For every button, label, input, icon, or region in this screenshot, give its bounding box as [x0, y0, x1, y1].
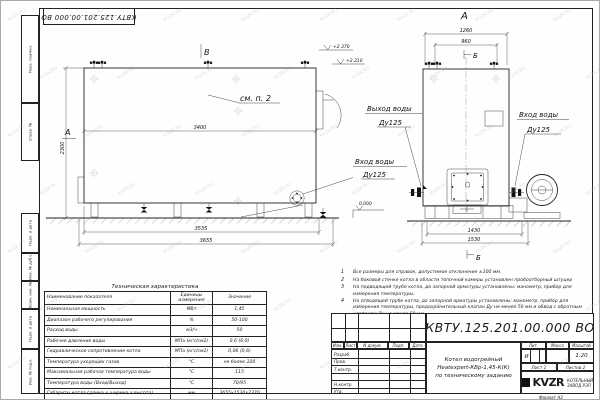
see-note-ref: см. п. 2	[240, 94, 271, 103]
side-stamp-perv-primen: Перв. примен.	[21, 15, 39, 103]
elevation-mid: +2.210	[346, 58, 363, 64]
view-label-a: А	[460, 11, 468, 22]
table-row: Номинальная мощностьМВт1,45	[45, 305, 267, 316]
sig-nkontr: Н.контр.	[334, 382, 353, 387]
tech-characteristics: Техническая характеристика Наименование …	[44, 284, 266, 400]
format-label: Формат А3	[539, 395, 563, 400]
param-value: 50-100	[213, 315, 267, 326]
side-stamp-label: Справ. №	[28, 123, 33, 141]
outlet-water-dn: Ду125	[378, 119, 403, 127]
company-logo-text: KVZR	[533, 376, 564, 389]
side-view: 3400 2300 3535 3655 В А +2.370	[46, 44, 407, 247]
side-stamp-label: Взам. инв. №	[28, 282, 33, 308]
table-row: Температура уходящих газов°Сне более 220	[45, 357, 267, 368]
inlet-water-dn: Ду125	[362, 171, 387, 179]
sig-prov: Пров.	[334, 359, 346, 364]
note-text: На боковой стенке котла в области топочн…	[353, 278, 572, 284]
side-stamp-label: Подп. и дата	[28, 220, 33, 246]
param-name: Габариты котла (длина х ширина х высота)	[45, 389, 171, 400]
side-stamp-podp-data-2: Подп. и дата	[21, 309, 39, 349]
boiler-shell	[84, 68, 316, 203]
tech-col-header: Наименование показателя	[45, 292, 171, 305]
inlet-water-label-front: Вход воды	[519, 111, 559, 119]
param-unit: °С	[171, 378, 213, 389]
side-stamp-inv-dubl: Инв. № дубл.	[21, 253, 39, 281]
drawing-sheet: KVZR.RUKVZR.RUKVZR.RUKVZR.RUKVZR.RUKVZR.…	[0, 0, 600, 400]
param-value: 0,6 (6,0)	[213, 336, 267, 347]
param-value: 50	[213, 326, 267, 337]
air-vent-valve	[90, 61, 98, 68]
section-mark-b-top: Б	[473, 52, 478, 60]
note-item: 3На подводящей трубе котла, до запорной …	[341, 285, 593, 297]
sheet-cell: Лист 1	[521, 363, 557, 371]
param-name: Температура воды (Вход/Выход)	[45, 378, 171, 389]
tech-table-title: Техническая характеристика	[44, 284, 266, 290]
param-unit: МВт	[171, 305, 213, 316]
param-name: Диапазон рабочего регулирования	[45, 315, 171, 326]
side-stamp-inv-podl: Инв. № подл.	[21, 349, 39, 394]
col-data: Дата	[409, 342, 426, 349]
param-value: 0,06 (0,6)	[213, 347, 267, 358]
doc-number: КВТУ.125.201.00.000 ВО	[427, 314, 593, 341]
lit-value: И	[525, 353, 529, 361]
revision-grid	[331, 313, 426, 342]
note-number: 3	[341, 285, 348, 297]
param-unit: %	[171, 315, 213, 326]
inlet-water-dn-front: Ду125	[526, 126, 551, 134]
side-stamp-label: Перв. примен.	[28, 45, 33, 74]
side-stamp-label: Инв. № дубл.	[28, 254, 33, 280]
note-text: Все размеры для справок, допустимое откл…	[353, 270, 501, 276]
sheets-value: 2	[583, 365, 586, 370]
flue-outlet	[316, 91, 323, 129]
signature-rows: Разраб. Пров. Т.контр. Н.контр. Утв.	[331, 349, 426, 394]
table-row: Температура воды (Вход/Выход)°С70/95	[45, 378, 267, 389]
boiler-drawing: 3400 2300 3535 3655 В А +2.370	[41, 9, 597, 269]
dim-2300: 2300	[60, 142, 66, 155]
param-name: Температура уходящих газов	[45, 357, 171, 368]
outlet-water-label: Выход воды	[367, 105, 412, 113]
note-number: 1	[341, 270, 348, 276]
param-value: не более 220	[213, 357, 267, 368]
param-name: Рабочее давление воды	[45, 336, 171, 347]
doc-title-line1: Котел водогрейный	[445, 356, 503, 364]
side-stamp-podp-data-1: Подп. и дата	[21, 213, 39, 253]
sig-tkontr: Т.контр.	[334, 367, 352, 372]
table-row: Гидравлическое сопротивление котлаМПа (к…	[45, 347, 267, 358]
table-row: Диапазон рабочего регулирования%50-100	[45, 315, 267, 326]
table-row: Максимальная рабочая температура воды°С1…	[45, 368, 267, 379]
col-ndocum: N докум.	[357, 342, 388, 349]
scale-value-cell: 1:20	[569, 349, 594, 363]
section-mark-a: А	[64, 128, 70, 137]
tech-table: Наименование показателя Единицы измерени…	[44, 291, 267, 400]
inlet-pipe-valve	[512, 188, 516, 198]
company-logo-mark	[522, 378, 530, 387]
section-mark-b-bottom: Б	[476, 254, 481, 262]
dim-3655: 3655	[200, 238, 213, 244]
side-stamp-label: Подп. и дата	[28, 316, 33, 342]
tech-col-header: Единицы измерения	[171, 292, 213, 305]
title-block: КВТУ.125.201.00.000 ВО Изм. Лист N докум…	[331, 313, 594, 394]
note-item: 2На боковой стенке котла в области топоч…	[341, 278, 593, 284]
dim-1530: 1530	[468, 237, 481, 243]
table-row: Рабочее давление водыМПа (кгс/см2)0,6 (6…	[45, 336, 267, 347]
scale-header: Масштаб	[569, 342, 594, 349]
dim-3400: 3400	[194, 125, 207, 131]
dim-1260: 1260	[460, 28, 473, 34]
dim-960: 960	[461, 39, 471, 45]
note-number: 2	[341, 278, 348, 284]
dim-1430: 1430	[468, 228, 481, 234]
inlet-water-label: Вход воды	[355, 158, 395, 166]
param-value: 3655х1530х2370	[213, 389, 267, 400]
param-unit: °С	[171, 368, 213, 379]
section-mark-b: В	[204, 48, 210, 57]
sig-razrab: Разраб.	[334, 352, 350, 357]
param-value: 115	[213, 368, 267, 379]
doc-title-line3: по техническому заданию	[435, 372, 512, 380]
tech-col-header: Значение	[213, 292, 267, 305]
side-stamp-vzam-inv: Взам. инв. №	[21, 281, 39, 309]
company-name-line2: ЗАВОД РЭП	[567, 383, 593, 388]
param-unit: МПа (кгс/см2)	[171, 336, 213, 347]
col-izm: Изм.	[331, 342, 344, 349]
drain-valve	[141, 203, 148, 213]
param-name: Гидравлическое сопротивление котла	[45, 347, 171, 358]
param-name: Номинальная мощность	[45, 305, 171, 316]
param-unit: м3/ч	[171, 326, 213, 337]
param-unit: мм	[171, 389, 213, 400]
param-unit: °С	[171, 357, 213, 368]
note-text: На подводящей трубе котла, до запорной а…	[353, 285, 593, 297]
table-row: Габариты котла (длина х ширина х высота)…	[45, 389, 267, 400]
side-stamp-sprav-no: Справ. №	[21, 103, 39, 161]
inspection-hatch	[485, 111, 503, 126]
notes-list: 1Все размеры для справок, допустимое отк…	[341, 270, 593, 319]
param-unit: МПа (кгс/см2)	[171, 347, 213, 358]
doc-title-line2: Heatexpert-КВр-1,45-К(К)	[437, 364, 509, 372]
lit-value-cell: И	[521, 349, 546, 363]
dim-3535: 3535	[195, 226, 208, 232]
title-cell: Котел водогрейный Heatexpert-КВр-1,45-К(…	[426, 342, 521, 394]
sheets-cell: Листов 2	[557, 363, 594, 371]
elevation-top: +2.370	[333, 44, 350, 50]
note-item: 1Все размеры для справок, допустимое отк…	[341, 270, 593, 276]
outlet-pipe-valve	[417, 188, 421, 198]
param-name: Максимальная рабочая температура воды	[45, 368, 171, 379]
mass-header: Масса	[546, 342, 569, 349]
company-cell: KVZR КОТЕЛЬНЫЙ ЗАВОД РЭП	[521, 371, 594, 394]
scale-value: 1:20	[570, 350, 593, 362]
sheet-label: Лист	[532, 365, 543, 370]
sheets-label: Листов	[566, 365, 582, 370]
docnumber-cell: КВТУ.125.201.00.000 ВО	[426, 313, 594, 342]
lit-header: Лит.	[521, 342, 546, 349]
table-row: Расход водым3/ч50	[45, 326, 267, 337]
side-stamp-label: Инв. № подл.	[28, 358, 33, 384]
front-view: А 1260 960 Б	[365, 11, 571, 262]
col-podp: Подп.	[388, 342, 409, 349]
mass-value-cell	[546, 349, 569, 363]
col-list: Лист	[344, 342, 357, 349]
elevation-zero: 0.000	[359, 201, 372, 207]
param-name: Расход воды	[45, 326, 171, 337]
param-value: 70/95	[213, 378, 267, 389]
param-value: 1,45	[213, 305, 267, 316]
sig-utv: Утв.	[334, 389, 343, 394]
sheet-value: 1	[544, 365, 547, 370]
